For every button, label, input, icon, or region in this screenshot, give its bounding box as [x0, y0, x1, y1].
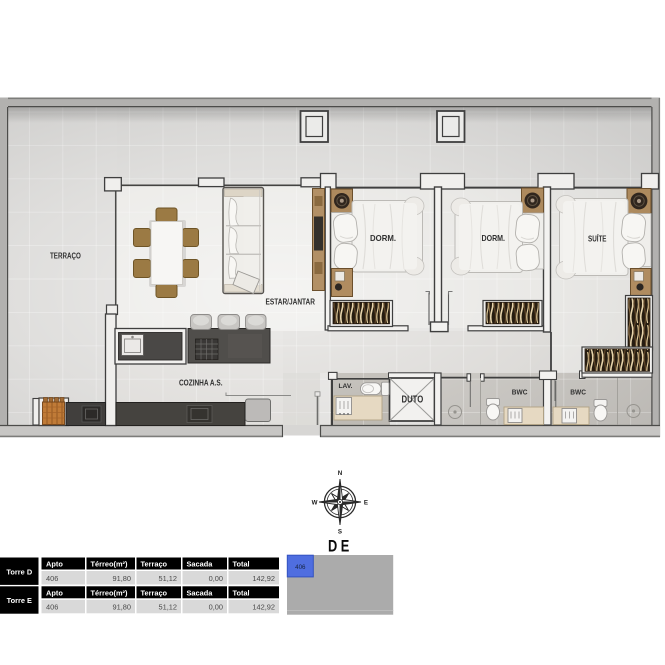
- svg-text:Apto: Apto: [46, 560, 63, 569]
- svg-text:ESTAR/JANTAR: ESTAR/JANTAR: [266, 297, 316, 306]
- svg-text:D E: D E: [328, 537, 349, 555]
- svg-text:COZINHA A.S.: COZINHA A.S.: [179, 379, 223, 388]
- svg-text:DORM.: DORM.: [370, 234, 396, 243]
- svg-text:406: 406: [46, 574, 58, 583]
- svg-text:TERRAÇO: TERRAÇO: [50, 252, 81, 261]
- svg-text:E: E: [364, 500, 368, 507]
- svg-text:Total: Total: [233, 560, 250, 569]
- svg-text:91,80: 91,80: [113, 574, 132, 583]
- svg-text:Térreo(m²): Térreo(m²): [91, 560, 128, 569]
- svg-text:0,00: 0,00: [209, 603, 223, 612]
- svg-text:142,92: 142,92: [252, 603, 275, 612]
- svg-text:Torre D: Torre D: [6, 567, 32, 576]
- svg-text:DORM.: DORM.: [482, 234, 506, 243]
- svg-text:LAV.: LAV.: [339, 383, 353, 390]
- svg-text:Térreo(m²): Térreo(m²): [91, 588, 128, 597]
- svg-text:BWC: BWC: [570, 387, 586, 396]
- svg-text:51,12: 51,12: [159, 574, 178, 583]
- svg-text:BWC: BWC: [512, 387, 528, 396]
- svg-text:Sacada: Sacada: [187, 560, 214, 569]
- svg-text:SUÍTE: SUÍTE: [588, 234, 607, 244]
- svg-text:DUTO: DUTO: [402, 394, 424, 405]
- svg-text:N: N: [338, 470, 343, 477]
- svg-text:W: W: [312, 500, 318, 507]
- svg-text:Terraço: Terraço: [141, 560, 168, 569]
- svg-text:Torre E: Torre E: [7, 596, 32, 605]
- svg-text:406: 406: [295, 564, 306, 571]
- svg-text:Sacada: Sacada: [187, 588, 214, 597]
- svg-text:Apto: Apto: [46, 588, 63, 597]
- svg-text:91,80: 91,80: [113, 603, 132, 612]
- svg-text:406: 406: [46, 603, 58, 612]
- svg-text:0,00: 0,00: [209, 574, 223, 583]
- svg-text:142,92: 142,92: [252, 574, 275, 583]
- svg-text:Total: Total: [233, 588, 250, 597]
- svg-text:51,12: 51,12: [159, 603, 178, 612]
- svg-text:Terraço: Terraço: [141, 588, 168, 597]
- svg-text:S: S: [338, 529, 342, 536]
